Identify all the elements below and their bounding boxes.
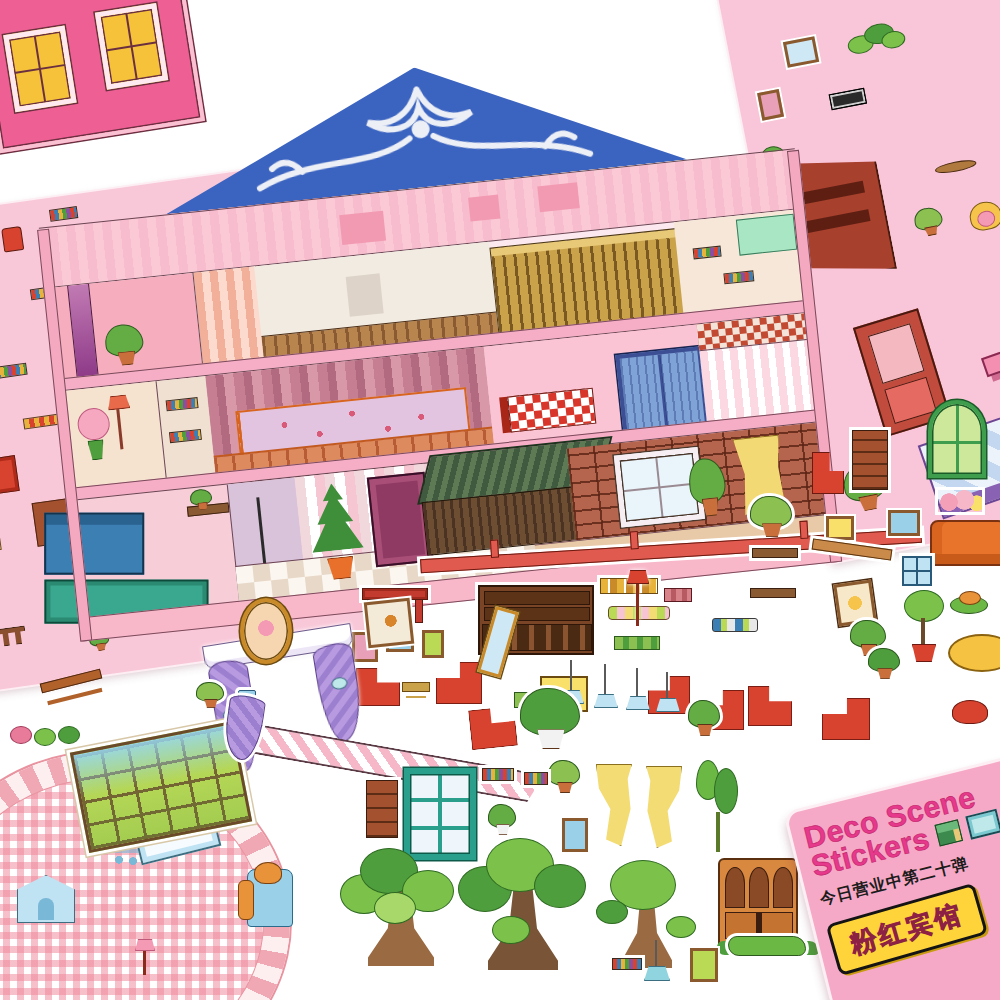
painter-pixel-icon — [934, 819, 963, 846]
pink-hotel-dollhouse — [27, 33, 839, 649]
big-tree-sticker — [458, 838, 586, 970]
flower-girl-sticker — [967, 199, 1000, 233]
small-plant-sticker — [688, 700, 720, 728]
mini-stool-sticker — [0, 625, 27, 647]
tall-bookshelf-sticker — [852, 430, 888, 490]
label-card: Deco Scene Stickers 今日营业中第二十弹 粉红宾馆 — [787, 757, 1000, 1000]
pedestal-stand-sticker — [934, 158, 977, 176]
mini-books-sticker — [612, 958, 642, 970]
yellow-curtain-sticker — [596, 764, 632, 846]
tall-leaf-plant-sticker — [692, 760, 746, 860]
mini-rug-sticker — [0, 538, 2, 556]
fern-plant-sticker — [868, 648, 900, 672]
big-tree-sticker — [596, 860, 696, 968]
mini-lamp-sticker — [143, 949, 146, 975]
green-arch-window-sticker — [928, 400, 986, 478]
bird-picture-sticker — [364, 598, 415, 649]
arched-cabinet-sticker — [718, 858, 798, 944]
facade-window — [3, 26, 76, 113]
mini-books-sticker — [0, 363, 28, 380]
shelf-board-sticker — [750, 588, 796, 598]
product-badge-text: 粉红宾馆 — [847, 899, 967, 960]
yellow-rug-sticker — [948, 634, 1000, 672]
potted-palm-sticker — [548, 760, 580, 786]
floor-lamp-sticker — [636, 582, 639, 626]
mini-house-sticker — [17, 875, 75, 923]
product-photo: Deco Scene Stickers 今日营业中第二十弹 粉红宾馆 — [0, 0, 1000, 1000]
big-tree-sticker — [340, 848, 460, 966]
orange-sofa-sticker — [930, 520, 1000, 566]
aloe-plant-sticker — [912, 205, 944, 232]
flower-pot-row-sticker — [10, 726, 80, 756]
picture-frame-sticker — [783, 36, 819, 68]
mini-frame-sticker — [422, 630, 444, 658]
green-jars-sticker — [614, 636, 660, 650]
mini-frame-sticker — [888, 510, 920, 536]
red-armchair-sticker — [822, 698, 870, 740]
clutter-sticker — [712, 618, 758, 632]
cupcakes-sticker — [608, 606, 670, 620]
oval-mirror-sticker — [240, 598, 292, 664]
small-plant-sticker — [488, 804, 516, 828]
cat-chair-sticker — [247, 869, 293, 927]
mini-books-sticker — [524, 772, 548, 785]
small-cabinet-sticker — [366, 780, 398, 838]
fern-plant-sticker — [850, 620, 886, 648]
shelf-board-sticker — [752, 548, 798, 558]
keyboard-sticker — [829, 88, 867, 111]
blueprint-frame-sticker — [902, 556, 932, 586]
facade-window — [95, 3, 168, 90]
tree-in-pot-sticker — [902, 590, 946, 662]
hedge-sticker — [728, 936, 806, 956]
pink-bed-sticker — [981, 321, 1000, 377]
red-armchair-sticker — [356, 668, 400, 706]
pig-characters-sticker — [938, 490, 982, 512]
red-cushion-sticker — [952, 700, 988, 724]
red-armchair-sticker — [748, 686, 792, 726]
red-armchair-sticker — [468, 706, 518, 751]
side-table-sticker — [402, 682, 430, 692]
herb-pot-sticker — [196, 682, 224, 702]
mini-frame-sticker — [826, 516, 854, 540]
sleeping-cat-sticker — [950, 596, 988, 614]
mini-clock-sticker — [1, 226, 24, 253]
red-armchair-sticker — [436, 662, 482, 704]
mini-frame-sticker — [690, 948, 718, 982]
mint-panel — [736, 214, 797, 256]
palm-plant-sticker — [845, 20, 908, 70]
yellow-curtain-sticker — [646, 766, 682, 848]
jars-sticker — [664, 588, 692, 602]
mini-books-sticker — [482, 768, 514, 781]
red-console-sticker — [0, 455, 20, 500]
blue-counter — [44, 513, 144, 575]
fern-plant-sticker — [750, 496, 792, 528]
